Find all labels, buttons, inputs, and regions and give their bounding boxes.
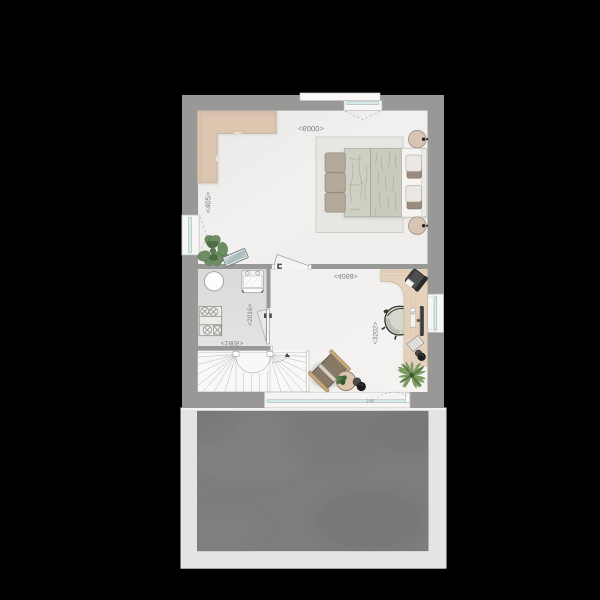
- svg-text:<3202>: <3202>: [373, 321, 380, 344]
- svg-text:<2016>: <2016>: [247, 303, 254, 326]
- svg-text:216: 216: [366, 398, 374, 403]
- svg-text:<4068>: <4068>: [334, 272, 358, 279]
- svg-text:<405>: <405>: [204, 191, 213, 213]
- svg-text:<6000>: <6000>: [298, 124, 324, 133]
- svg-text:<1805>: <1805>: [221, 339, 244, 346]
